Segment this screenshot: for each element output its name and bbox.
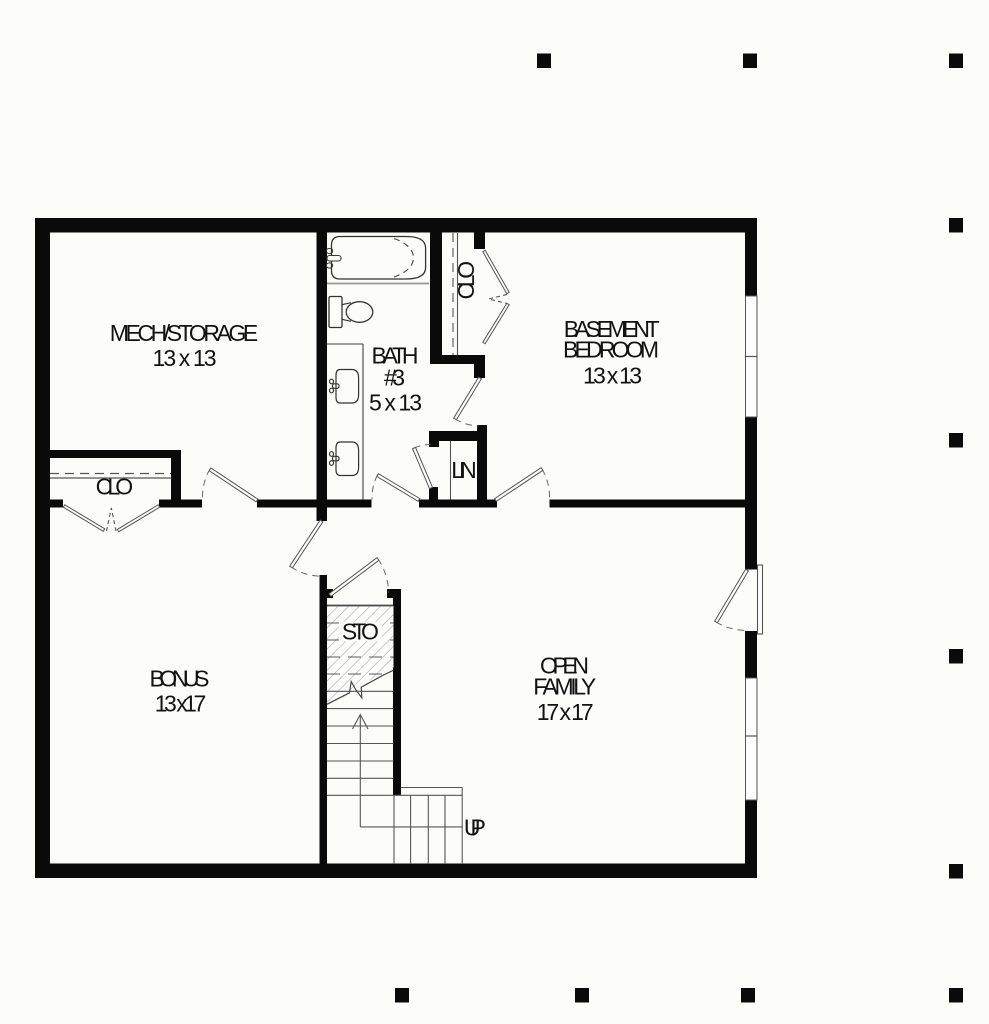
svg-text:MECH/STORAGE: MECH/STORAGE (110, 320, 259, 346)
svg-text:LIN: LIN (451, 457, 477, 483)
svg-text:UP: UP (464, 815, 486, 841)
svg-text:13 x 13: 13 x 13 (153, 345, 217, 371)
svg-text:CLO: CLO (453, 261, 479, 300)
svg-text:FAMILY: FAMILY (533, 674, 596, 700)
svg-text:17 x 17: 17 x 17 (537, 699, 594, 725)
svg-text:BONUS: BONUS (150, 666, 210, 692)
svg-text:STO: STO (342, 619, 379, 645)
svg-text:5 x 13: 5 x 13 (369, 390, 422, 416)
svg-text:13 x 13: 13 x 13 (583, 363, 642, 389)
svg-text:#3: #3 (384, 365, 405, 391)
svg-text:BEDROOM: BEDROOM (563, 337, 659, 363)
svg-text:CLO: CLO (96, 474, 133, 500)
svg-text:13 x17: 13 x17 (155, 691, 207, 717)
